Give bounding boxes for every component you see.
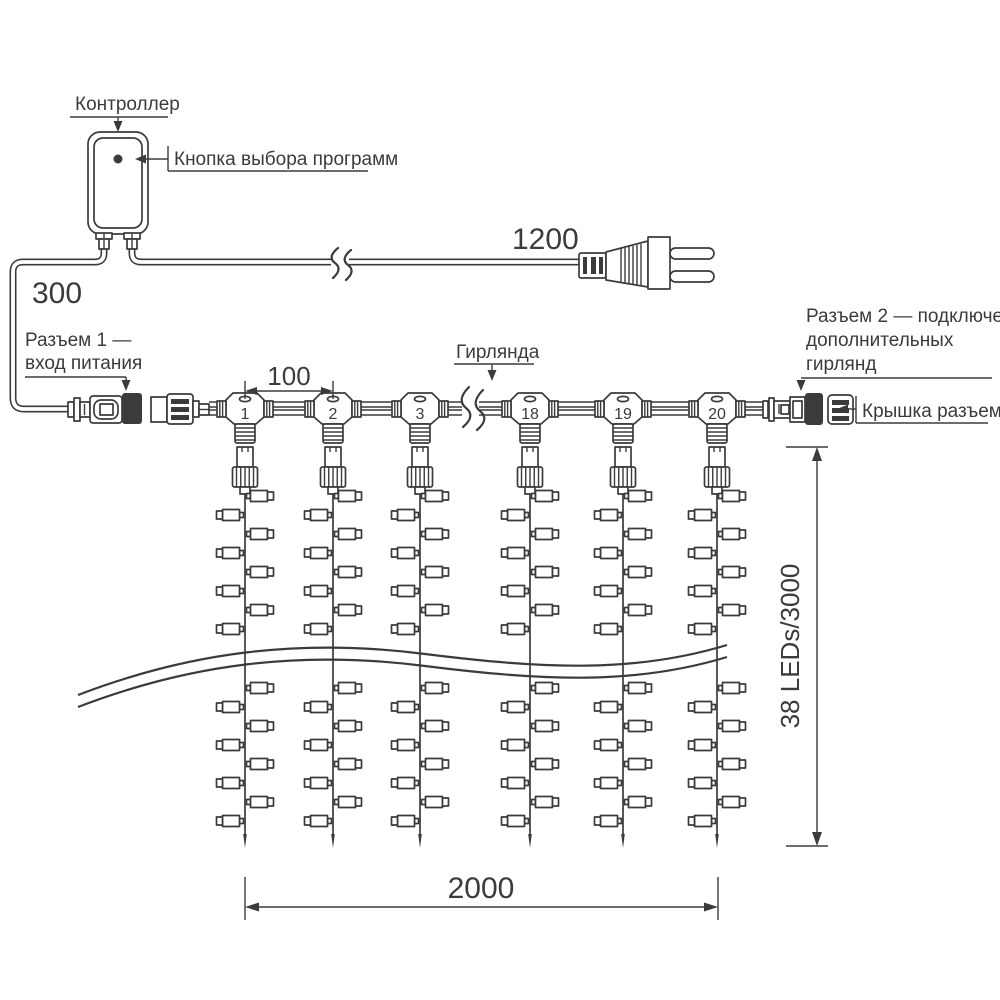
- t-connector: 2: [305, 393, 361, 494]
- led-lamp: [625, 491, 652, 502]
- connector2-label-line1: Разъем 2 — подключение: [806, 306, 1000, 327]
- led-lamp: [595, 624, 622, 635]
- program-button-label: Кнопка выбора программ: [135, 146, 398, 171]
- led-lamp: [689, 778, 716, 789]
- cap-label-text: Крышка разъема: [862, 401, 1000, 422]
- cable-gland-right: [124, 233, 140, 249]
- led-lamp: [335, 491, 362, 502]
- cap-label: Крышка разъема: [837, 396, 1000, 423]
- led-lamp: [719, 529, 746, 540]
- diagram-page: Контроллер Кнопка выбора программ 300 12…: [0, 0, 1000, 1000]
- led-lamp: [392, 624, 419, 635]
- led-lamp: [422, 797, 449, 808]
- led-lamp: [502, 702, 529, 713]
- led-lamp: [305, 510, 332, 521]
- cord-break-icon: [332, 248, 352, 280]
- led-lamp: [532, 721, 559, 732]
- led-lamp: [392, 510, 419, 521]
- curtain-wave-break: [78, 645, 727, 707]
- connector1-locking-ring: [122, 393, 142, 424]
- led-lamp: [422, 759, 449, 770]
- led-lamp: [689, 624, 716, 635]
- drop-number: 20: [708, 406, 726, 423]
- led-lamp: [247, 491, 274, 502]
- led-lamp: [247, 683, 274, 694]
- drop-number: 19: [614, 406, 632, 423]
- led-lamp: [689, 548, 716, 559]
- led-string: [305, 491, 362, 849]
- led-lamp: [305, 586, 332, 597]
- led-lamp: [595, 702, 622, 713]
- curtain-width-value: 2000: [448, 872, 515, 905]
- lead-in-dimension: 300: [32, 277, 82, 310]
- led-lamp: [217, 740, 244, 751]
- led-string: [502, 491, 559, 849]
- led-lamp: [689, 702, 716, 713]
- led-lamp: [335, 567, 362, 578]
- led-lamp: [247, 797, 274, 808]
- led-lamp: [532, 491, 559, 502]
- connector2-label-line3: гирлянд: [806, 354, 876, 375]
- led-lamp: [532, 567, 559, 578]
- led-lamp: [392, 778, 419, 789]
- led-lamp: [719, 759, 746, 770]
- led-lamp: [625, 797, 652, 808]
- t-connector: 3: [392, 393, 448, 494]
- led-lamp: [625, 529, 652, 540]
- led-string: [392, 491, 449, 849]
- connector1-label: Разъем 1 — вход питания: [25, 330, 142, 391]
- led-lamp: [335, 683, 362, 694]
- led-lamp: [247, 567, 274, 578]
- led-lamp: [625, 721, 652, 732]
- power-cord-dimension: 1200: [512, 223, 579, 256]
- led-lamp: [335, 529, 362, 540]
- controller-label-text: Контроллер: [75, 94, 180, 115]
- arrow-down-icon: [488, 370, 497, 381]
- led-lamp: [595, 778, 622, 789]
- led-lamp: [502, 740, 529, 751]
- led-lamp: [392, 740, 419, 751]
- connector1-label-line2: вход питания: [25, 353, 142, 374]
- led-lamp: [689, 740, 716, 751]
- led-lamp: [422, 491, 449, 502]
- led-lamp: [305, 740, 332, 751]
- led-lamp: [217, 778, 244, 789]
- t-connector: 1: [217, 393, 273, 494]
- led-lamp: [422, 567, 449, 578]
- connector2-label: Разъем 2 — подключение дополнительных ги…: [797, 306, 1000, 391]
- garland-label-text: Гирлянда: [456, 342, 540, 363]
- led-lamp: [532, 797, 559, 808]
- led-lamp: [247, 721, 274, 732]
- led-strings: [217, 491, 746, 849]
- led-lamp: [595, 740, 622, 751]
- led-lamp: [532, 759, 559, 770]
- led-lamp: [335, 797, 362, 808]
- garland-label: Гирлянда: [454, 342, 540, 381]
- led-lamp: [247, 759, 274, 770]
- led-lamp: [502, 778, 529, 789]
- led-lamp: [625, 683, 652, 694]
- lead-in-wire: [13, 246, 104, 409]
- connector1-label-line1: Разъем 1 —: [25, 330, 131, 351]
- led-lamp: [217, 548, 244, 559]
- program-button-dot[interactable]: [114, 155, 123, 164]
- led-lamp: [247, 529, 274, 540]
- drop-spacing-value: 100: [267, 361, 310, 391]
- t-connector: 18: [502, 393, 558, 494]
- led-lamp: [625, 605, 652, 616]
- led-lamp: [625, 567, 652, 578]
- led-lamp: [217, 510, 244, 521]
- led-lamp: [532, 529, 559, 540]
- dimension-curtain-width: 2000: [245, 872, 718, 920]
- led-lamp: [502, 510, 529, 521]
- plug-prong-bottom: [670, 271, 714, 282]
- power-plug: [579, 237, 714, 289]
- led-lamp: [719, 721, 746, 732]
- led-lamp: [719, 491, 746, 502]
- connector2-label-line2: дополнительных: [806, 330, 954, 351]
- drop-number: 3: [416, 406, 425, 423]
- led-lamp: [217, 816, 244, 827]
- arrow-down-icon: [114, 121, 123, 132]
- arrow-down-icon: [797, 380, 806, 391]
- led-lamp: [217, 702, 244, 713]
- led-lamp: [502, 816, 529, 827]
- dimension-string-height: 38 LEDs/3000: [775, 447, 828, 846]
- led-lamp: [502, 624, 529, 635]
- arrow-down-icon: [122, 380, 131, 391]
- led-lamp: [392, 702, 419, 713]
- plug-prong-top: [670, 248, 714, 259]
- led-string: [217, 491, 274, 849]
- led-lamp: [689, 816, 716, 827]
- connector2-body: [805, 393, 823, 425]
- led-lamp: [595, 816, 622, 827]
- t-connector: 19: [595, 393, 651, 494]
- led-lamp: [625, 759, 652, 770]
- led-lamp: [305, 816, 332, 827]
- led-lamp: [335, 721, 362, 732]
- led-lamp: [305, 778, 332, 789]
- led-lamp: [422, 605, 449, 616]
- t-connectors: 123181920: [217, 393, 745, 494]
- led-string: [689, 491, 746, 849]
- led-lamp: [719, 797, 746, 808]
- led-lamp: [305, 624, 332, 635]
- led-lamp: [392, 586, 419, 597]
- led-lamp: [422, 721, 449, 732]
- drop-number: 1: [241, 406, 250, 423]
- led-lamp: [335, 759, 362, 770]
- bus-break-icon: [462, 387, 485, 430]
- wiring-diagram: Контроллер Кнопка выбора программ 300 12…: [0, 0, 1000, 1000]
- led-lamp: [217, 624, 244, 635]
- led-lamp: [305, 702, 332, 713]
- led-lamp: [502, 548, 529, 559]
- t-connector: 20: [689, 393, 745, 494]
- led-lamp: [719, 683, 746, 694]
- led-lamp: [335, 605, 362, 616]
- led-lamp: [719, 605, 746, 616]
- led-lamp: [247, 605, 274, 616]
- led-lamp: [595, 548, 622, 559]
- led-lamp: [392, 548, 419, 559]
- led-string: [595, 491, 652, 849]
- led-lamp: [502, 586, 529, 597]
- cable-gland-left: [96, 233, 112, 249]
- string-height-value: 38 LEDs/3000: [775, 564, 805, 729]
- led-lamp: [422, 529, 449, 540]
- drop-number: 2: [329, 406, 338, 423]
- led-lamp: [422, 683, 449, 694]
- connector1-assembly: [68, 393, 209, 424]
- drop-number: 18: [521, 406, 539, 423]
- program-button-label-text: Кнопка выбора программ: [174, 149, 398, 170]
- led-lamp: [392, 816, 419, 827]
- led-lamp: [595, 586, 622, 597]
- led-lamp: [532, 605, 559, 616]
- led-lamp: [595, 510, 622, 521]
- bus-cable: [209, 387, 766, 430]
- led-lamp: [719, 567, 746, 578]
- led-lamp: [532, 683, 559, 694]
- led-lamp: [217, 586, 244, 597]
- led-lamp: [689, 586, 716, 597]
- controller-label: Контроллер: [70, 94, 180, 132]
- led-lamp: [689, 510, 716, 521]
- controller-box: [88, 132, 148, 249]
- led-lamp: [305, 548, 332, 559]
